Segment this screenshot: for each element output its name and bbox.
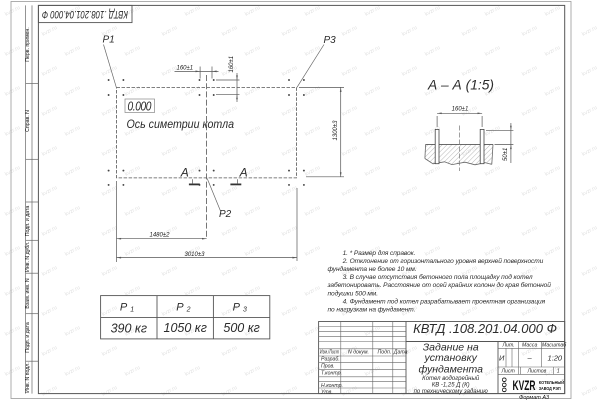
svg-text:N докум.: N докум.: [348, 350, 369, 356]
svg-text:Лит.: Лит.: [502, 342, 515, 348]
svg-text:ООО: ООО: [501, 377, 508, 392]
svg-text:Инв. N дубл.: Инв. N дубл.: [25, 242, 31, 272]
svg-text:Формат А3: Формат А3: [519, 395, 550, 400]
svg-text:подушки 500 мм.: подушки 500 мм.: [328, 289, 379, 297]
svg-text:2. Отклонение от горизонтально: 2. Отклонение от горизонтального уровня …: [342, 257, 544, 265]
svg-text:160±1: 160±1: [229, 56, 235, 73]
svg-text:3. В случае отсутствия бетонно: 3. В случае отсутствия бетонного пола пл…: [343, 273, 533, 281]
svg-text:КВТД .108.201.04.000 Ф: КВТД .108.201.04.000 Ф: [42, 8, 128, 20]
svg-text:по нагрузкам на фундамент.: по нагрузкам на фундамент.: [328, 305, 416, 313]
svg-text:Подп. и дата: Подп. и дата: [25, 206, 31, 237]
svg-text:Н.контр.: Н.контр.: [321, 383, 343, 389]
svg-text:Р2: Р2: [219, 209, 232, 220]
svg-text:1. * Размер для справок.: 1. * Размер для справок.: [343, 249, 416, 257]
svg-text:КВТД .108.201.04.000 Ф: КВТД .108.201.04.000 Ф: [413, 321, 557, 336]
svg-text:Т.контр.: Т.контр.: [321, 371, 342, 377]
svg-text:Масса: Масса: [522, 342, 537, 348]
svg-text:Разраб.: Разраб.: [321, 357, 340, 363]
svg-text:Ось симетрии котла: Ось симетрии котла: [127, 117, 235, 131]
svg-text:А – А (1:5): А – А (1:5): [427, 77, 494, 93]
svg-text:Изм./Лист: Изм./Лист: [320, 350, 340, 356]
svg-text:Лист: Лист: [501, 368, 516, 374]
svg-text:1480±2: 1480±2: [150, 233, 171, 239]
svg-text:Пров.: Пров.: [321, 363, 335, 369]
svg-text:Перв. примен.: Перв. примен.: [25, 27, 31, 62]
svg-text:Утв.: Утв.: [321, 389, 333, 395]
svg-text:Взам. инв. N: Взам. инв. N: [25, 278, 31, 309]
svg-text:А: А: [180, 165, 189, 179]
svg-text:160±1: 160±1: [177, 66, 194, 72]
svg-text:0.000: 0.000: [128, 99, 152, 114]
svg-text:фундамента: фундамента: [418, 364, 483, 376]
svg-text:ЗАВОД РЭП: ЗАВОД РЭП: [539, 386, 561, 391]
svg-text:Р3: Р3: [324, 35, 337, 46]
svg-text:1300±3: 1300±3: [333, 120, 339, 141]
svg-text:Масштаб: Масштаб: [542, 342, 567, 348]
svg-text:по техническому заданию: по техническому заданию: [414, 389, 489, 395]
svg-text:Подп.: Подп.: [378, 350, 392, 356]
svg-text:установку: установку: [424, 352, 478, 364]
svg-text:Котел водогрейный: Котел водогрейный: [422, 375, 480, 382]
svg-text:KVZR: KVZR: [513, 377, 536, 393]
svg-text:Подп. и дата: Подп. и дата: [25, 322, 31, 353]
svg-text:А: А: [239, 165, 248, 179]
svg-text:390 кг: 390 кг: [111, 322, 147, 336]
svg-text:4. Фундамент под котел разраба: 4. Фундамент под котел разрабатывает про…: [343, 297, 546, 305]
svg-text:Листов: Листов: [527, 368, 547, 374]
svg-text:забетонировать. Расстояние от: забетонировать. Расстояние от осей крайн…: [327, 281, 552, 289]
svg-text:Справ. N: Справ. N: [25, 110, 31, 132]
svg-text:фундамента не более 10 мм.: фундамента не более 10 мм.: [328, 265, 417, 273]
svg-text:50±1: 50±1: [503, 148, 509, 161]
svg-text:КВ -1,25 Д (К): КВ -1,25 Д (К): [432, 383, 470, 389]
svg-text:160±1: 160±1: [452, 107, 469, 113]
svg-text:–: –: [527, 354, 533, 363]
svg-text:3010±3: 3010±3: [185, 252, 206, 258]
svg-text:1050 кг: 1050 кг: [164, 321, 207, 335]
svg-text:1:20: 1:20: [548, 354, 563, 363]
svg-text:500 кг: 500 кг: [223, 321, 259, 335]
svg-text:Р1: Р1: [103, 35, 115, 46]
svg-text:Инв. N подл.: Инв. N подл.: [25, 362, 31, 393]
svg-text:1: 1: [557, 368, 560, 374]
svg-text:И: И: [499, 354, 505, 363]
svg-text:КОТЕЛЬНЫЙ: КОТЕЛЬНЫЙ: [539, 378, 564, 385]
svg-text:Дата: Дата: [393, 350, 408, 356]
